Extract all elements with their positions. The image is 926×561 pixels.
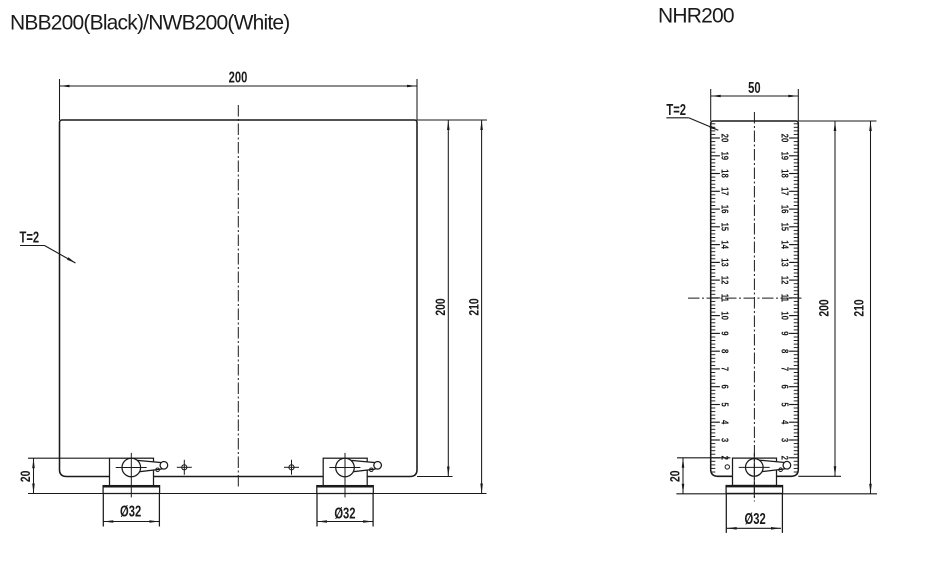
svg-text:19: 19	[779, 151, 790, 160]
svg-text:5: 5	[779, 402, 790, 406]
svg-text:200: 200	[432, 298, 448, 315]
svg-text:19: 19	[719, 151, 730, 160]
svg-text:10: 10	[719, 311, 730, 320]
svg-text:8: 8	[779, 349, 790, 353]
svg-text:4: 4	[719, 420, 730, 424]
svg-text:200: 200	[816, 299, 832, 316]
svg-text:10: 10	[779, 311, 790, 320]
svg-text:9: 9	[719, 331, 730, 335]
svg-text:16: 16	[719, 205, 730, 214]
svg-text:7: 7	[719, 367, 730, 371]
svg-text:T=2: T=2	[20, 227, 40, 246]
svg-text:17: 17	[719, 187, 730, 196]
svg-text:15: 15	[719, 222, 730, 231]
svg-text:210: 210	[466, 298, 482, 315]
svg-text:210: 210	[851, 299, 867, 316]
svg-text:4: 4	[779, 420, 790, 424]
svg-text:Ø32: Ø32	[120, 501, 141, 520]
svg-text:14: 14	[719, 240, 730, 249]
svg-text:6: 6	[779, 385, 790, 389]
svg-text:6: 6	[719, 385, 730, 389]
svg-text:7: 7	[779, 367, 790, 371]
svg-text:17: 17	[779, 187, 790, 196]
svg-text:200: 200	[229, 67, 248, 86]
svg-text:2: 2	[779, 456, 790, 460]
svg-text:Ø32: Ø32	[745, 509, 766, 528]
svg-text:NHR200: NHR200	[658, 5, 734, 28]
svg-text:20: 20	[18, 471, 34, 483]
svg-text:Ø32: Ø32	[334, 503, 355, 522]
svg-text:NBB200(Black)/NWB200(White): NBB200(Black)/NWB200(White)	[10, 12, 290, 35]
svg-text:T=2: T=2	[666, 100, 686, 119]
svg-text:20: 20	[667, 470, 683, 482]
svg-text:50: 50	[748, 78, 761, 97]
svg-text:3: 3	[719, 438, 730, 442]
svg-text:18: 18	[719, 169, 730, 178]
svg-text:12: 12	[779, 276, 790, 285]
svg-text:16: 16	[779, 205, 790, 214]
svg-text:20: 20	[719, 134, 730, 143]
svg-text:9: 9	[779, 331, 790, 335]
svg-text:15: 15	[779, 222, 790, 231]
svg-text:12: 12	[719, 276, 730, 285]
svg-text:14: 14	[779, 240, 790, 249]
svg-text:5: 5	[719, 402, 730, 406]
svg-text:20: 20	[779, 134, 790, 143]
svg-text:18: 18	[779, 169, 790, 178]
svg-text:13: 13	[779, 258, 790, 267]
svg-text:13: 13	[719, 258, 730, 267]
svg-text:3: 3	[779, 438, 790, 442]
svg-text:8: 8	[719, 349, 730, 353]
